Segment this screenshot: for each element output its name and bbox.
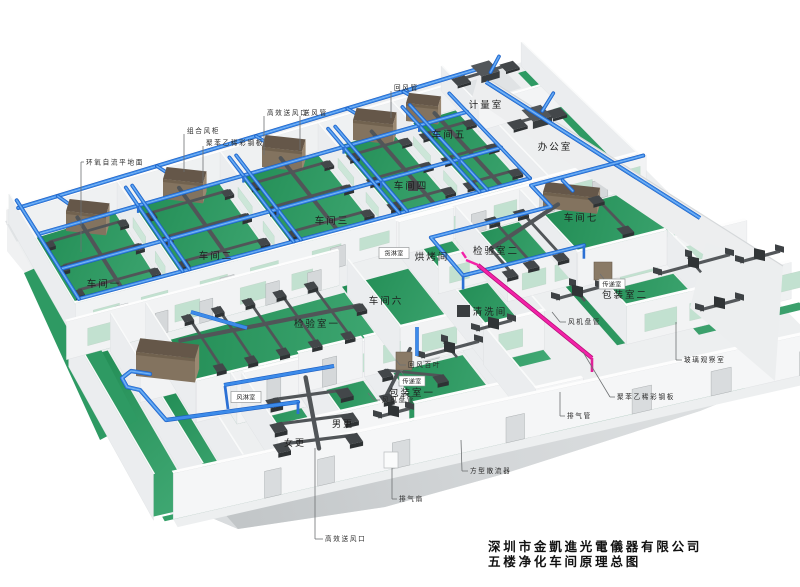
svg-text:排气扇: 排气扇 — [399, 494, 424, 503]
svg-text:车间七: 车间七 — [564, 212, 599, 224]
svg-text:回风管: 回风管 — [394, 83, 419, 92]
svg-text:办公室: 办公室 — [538, 141, 573, 153]
svg-text:回风百叶: 回风百叶 — [408, 360, 441, 369]
svg-text:清洗间: 清洗间 — [473, 306, 508, 318]
svg-text:聚苯乙稀彩钢板: 聚苯乙稀彩钢板 — [617, 392, 675, 401]
svg-text:烘烤间: 烘烤间 — [415, 251, 450, 263]
svg-text:高效送风口: 高效送风口 — [325, 534, 366, 543]
svg-text:检验室一: 检验室一 — [294, 318, 340, 330]
svg-text:风机盘管: 风机盘管 — [568, 317, 601, 326]
svg-text:组合风柜: 组合风柜 — [187, 126, 220, 135]
svg-text:检验室二: 检验室二 — [473, 245, 519, 257]
svg-text:车间二: 车间二 — [199, 250, 234, 262]
svg-text:风机盘管: 风机盘管 — [382, 395, 415, 404]
svg-text:深圳市金凱進光電儀器有限公司: 深圳市金凱進光電儀器有限公司 — [488, 539, 702, 554]
svg-text:车间一: 车间一 — [87, 278, 122, 290]
svg-text:女更: 女更 — [284, 437, 306, 448]
svg-text:聚苯乙稀彩钢板: 聚苯乙稀彩钢板 — [206, 138, 264, 147]
svg-text:车间四: 车间四 — [394, 180, 429, 192]
svg-text:传递室: 传递室 — [602, 281, 621, 289]
svg-text:车间三: 车间三 — [315, 215, 350, 227]
svg-text:玻璃观察室: 玻璃观察室 — [684, 355, 725, 364]
svg-text:传递室: 传递室 — [402, 378, 421, 386]
svg-text:计量室: 计量室 — [469, 99, 504, 111]
svg-text:车间五: 车间五 — [432, 129, 467, 141]
svg-text:环氧自流平地面: 环氧自流平地面 — [86, 158, 144, 167]
svg-text:送风管: 送风管 — [303, 108, 328, 117]
svg-text:车间六: 车间六 — [369, 295, 404, 307]
svg-text:五楼净化车间原理总图: 五楼净化车间原理总图 — [488, 554, 641, 569]
svg-text:排气管: 排气管 — [567, 411, 592, 420]
svg-text:包装室二: 包装室二 — [602, 289, 648, 301]
svg-text:风淋室: 风淋室 — [236, 394, 255, 402]
svg-text:男更: 男更 — [332, 419, 354, 429]
svg-text:方型散流器: 方型散流器 — [470, 466, 511, 475]
svg-text:货淋室: 货淋室 — [384, 250, 403, 258]
